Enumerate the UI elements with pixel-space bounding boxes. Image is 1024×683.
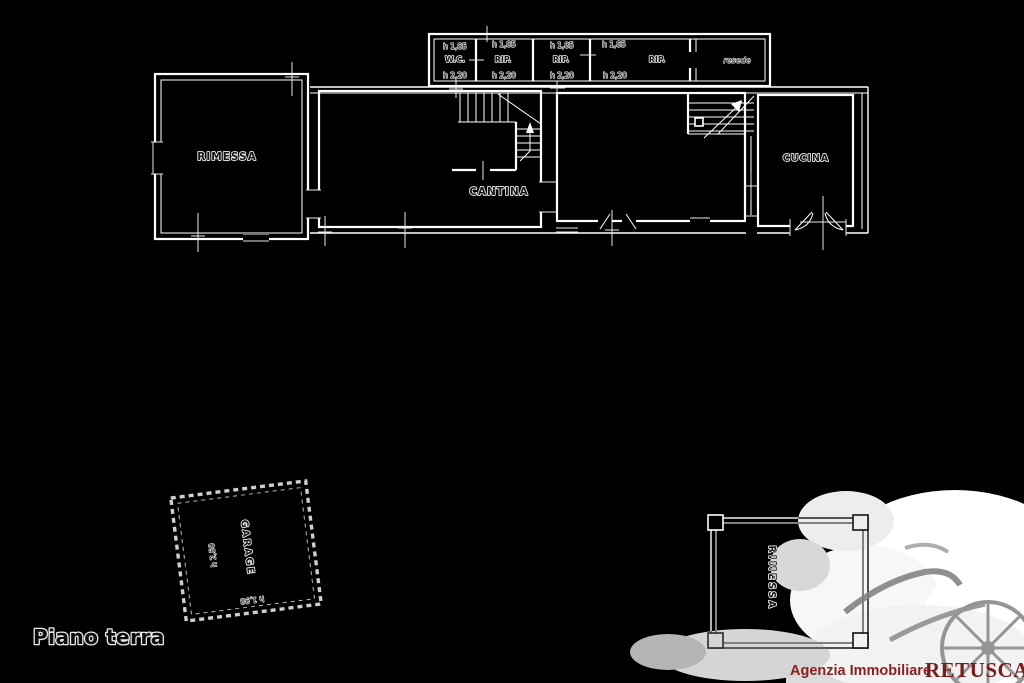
room-cucina: CUCINA: [758, 95, 853, 236]
height-label: h 1,85: [492, 40, 516, 49]
room-label-cantina: CANTINA: [469, 186, 529, 198]
room-label-rip: RIP.: [649, 55, 666, 64]
strip-room-resede: resede: [723, 56, 750, 65]
page-title: Piano terra: [33, 625, 165, 649]
room-label-rip: RIP.: [553, 55, 570, 64]
strip-room-rip-1: h 1,85 RIP. h 2,20: [492, 40, 516, 80]
agency-watermark-image: [630, 490, 1024, 683]
room-label-rimessa: RIMESSA: [197, 151, 256, 163]
height-label: h 1,85: [602, 40, 626, 49]
height-label: h 1,85: [550, 41, 574, 50]
main-plan: RIMESSA CANTINA: [33, 26, 868, 649]
room-label-wc: W.C.: [445, 55, 465, 64]
room-cantina: CANTINA: [305, 91, 559, 227]
height-label: h 2,20: [550, 71, 574, 80]
agency-name: Agenzia Immobiliare: [790, 663, 931, 679]
strip-room-wc: h 1,85 W.C. h 2,20: [443, 42, 467, 80]
garage-height-label: h 2,50: [207, 543, 219, 568]
room-label-resede: resede: [723, 56, 750, 65]
height-label: h 1,85: [443, 42, 467, 51]
staircase-1-icon: [458, 93, 541, 161]
garage-edge-height-label: h 1,98: [240, 594, 265, 606]
room-label-rip: RIP.: [495, 55, 512, 64]
top-strip: h 1,85 W.C. h 2,20 h 1,85 RIP. h 2,20 h …: [429, 34, 770, 86]
height-label: h 2,20: [603, 71, 627, 80]
room-rimessa: RIMESSA: [151, 74, 308, 242]
garage-building: GARAGE h 2,50 h 1,98: [171, 481, 321, 621]
height-label: h 2,20: [443, 71, 467, 80]
brand-name: RETUSCANY: [925, 658, 1024, 682]
strip-room-rip-2: h 1,85 RIP. h 2,20: [550, 41, 574, 80]
room-label-garage: GARAGE: [238, 519, 256, 576]
room-middle: [556, 93, 745, 232]
floor-plan-drawing: RIMESSA CANTINA: [0, 0, 1024, 683]
height-label: h 2,20: [492, 71, 516, 80]
strip-room-rip-3: h 1,85 RIP. h 2,20: [602, 40, 665, 80]
room-label-cucina: CUCINA: [783, 153, 830, 164]
floor-plan-canvas: RIMESSA CANTINA: [0, 0, 1024, 683]
